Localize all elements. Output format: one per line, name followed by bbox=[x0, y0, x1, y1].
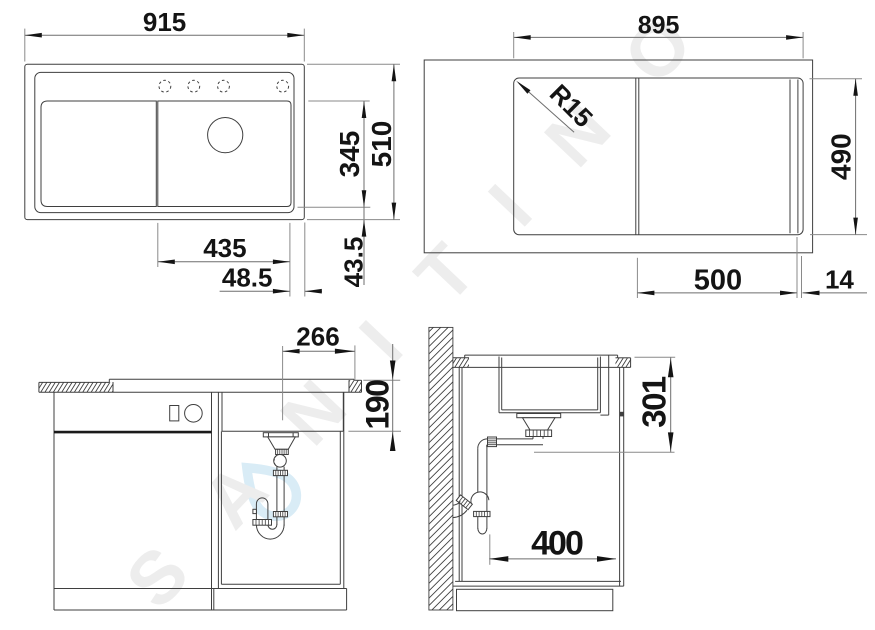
svg-text:490: 490 bbox=[826, 133, 857, 180]
svg-text:190: 190 bbox=[359, 380, 395, 430]
svg-text:48.5: 48.5 bbox=[222, 263, 273, 293]
svg-text:500: 500 bbox=[694, 265, 742, 297]
svg-text:435: 435 bbox=[203, 233, 246, 263]
svg-text:266: 266 bbox=[296, 321, 339, 351]
svg-text:895: 895 bbox=[638, 12, 680, 40]
svg-text:301: 301 bbox=[635, 376, 672, 428]
svg-text:400: 400 bbox=[531, 524, 583, 562]
svg-text:510: 510 bbox=[366, 121, 397, 168]
svg-text:14: 14 bbox=[825, 264, 854, 294]
svg-text:915: 915 bbox=[143, 7, 186, 37]
svg-text:43.5: 43.5 bbox=[338, 237, 368, 288]
svg-text:345: 345 bbox=[334, 131, 365, 178]
